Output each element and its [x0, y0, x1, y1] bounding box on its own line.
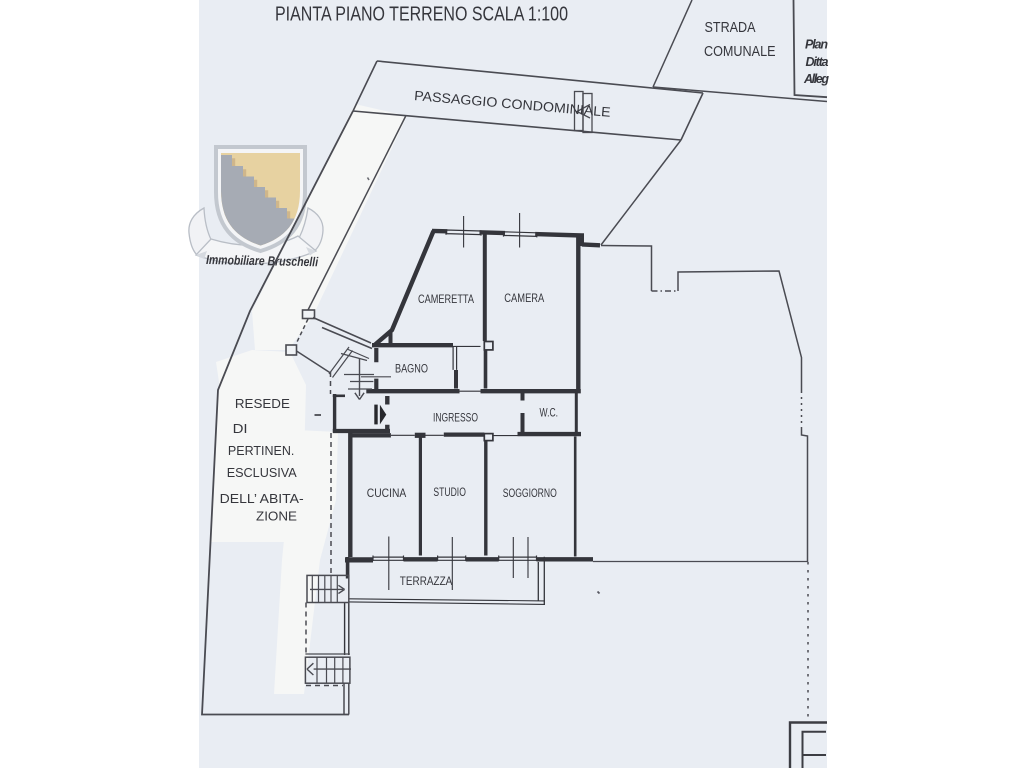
svg-text:SOGGIORNO: SOGGIORNO: [503, 488, 557, 500]
svg-text:TERRAZZA: TERRAZZA: [400, 574, 453, 588]
svg-text:Immobiliare Bruschelli: Immobiliare Bruschelli: [206, 252, 319, 269]
svg-text:STRADA: STRADA: [705, 20, 756, 36]
svg-text:CAMERETTA: CAMERETTA: [418, 294, 474, 306]
svg-text:Plan: Plan: [805, 38, 828, 52]
svg-text:COMUNALE: COMUNALE: [704, 44, 776, 60]
svg-text:CAMERA: CAMERA: [504, 293, 544, 305]
svg-text:INGRESSO: INGRESSO: [433, 413, 478, 425]
svg-text:DELL’ ABITA-: DELL’ ABITA-: [220, 491, 304, 506]
svg-text:Alleg: Alleg: [803, 72, 829, 86]
svg-text:ZIONE: ZIONE: [256, 509, 297, 524]
svg-text:STUDIO: STUDIO: [433, 487, 466, 499]
svg-text:ESCLUSIVA: ESCLUSIVA: [227, 465, 297, 480]
svg-text:RESEDE: RESEDE: [235, 396, 290, 411]
svg-text:W.C.: W.C.: [540, 408, 559, 420]
svg-text:DI: DI: [233, 421, 248, 436]
svg-text:PIANTA PIANO TERRENO SCALA 1:1: PIANTA PIANO TERRENO SCALA 1:100: [275, 4, 568, 26]
svg-text:CUCINA: CUCINA: [367, 488, 407, 500]
svg-text:PERTINEN.: PERTINEN.: [228, 443, 295, 458]
svg-text:BAGNO: BAGNO: [395, 364, 428, 376]
svg-text:Ditta: Ditta: [806, 55, 829, 69]
